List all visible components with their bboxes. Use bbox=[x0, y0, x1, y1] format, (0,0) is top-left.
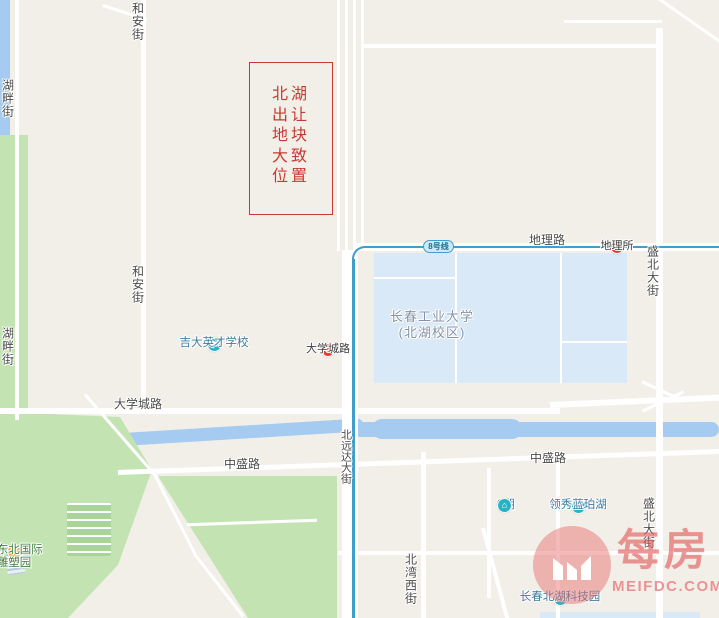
annotation-box: 北湖出让地块大致位置 bbox=[249, 62, 333, 215]
road-label-heanjie-top-text: 和安街 bbox=[131, 2, 144, 41]
watermark-domain-text: MEIFDC.COM bbox=[612, 578, 719, 595]
road-label-zhongsheng-west-text: 中盛路 bbox=[224, 458, 260, 471]
road-label-dililu-text: 地理路 bbox=[529, 234, 565, 247]
poi-jida-yingcai-school-text: 吉大英才学校 bbox=[180, 337, 249, 350]
station-daxuechenglu-text: 大学城路 bbox=[306, 343, 350, 356]
road-label-shengbei-top-text: 盛北大街 bbox=[646, 245, 659, 297]
annotation-line-5: 位置 bbox=[250, 166, 332, 187]
road-label-hupanjie-bottom-text: 湖畔街 bbox=[1, 327, 14, 366]
road-label-zhongsheng-east-text: 中盛路 bbox=[530, 452, 566, 465]
road-label-heanjie-mid-text: 和安街 bbox=[131, 265, 144, 304]
station-dilisuo-text: 地理所 bbox=[601, 240, 634, 253]
annotation-line-3: 地块 bbox=[250, 125, 332, 146]
campus-label-ccut-text: 长春工业大学(北湖校区) bbox=[390, 309, 474, 341]
residence-icon[interactable]: ⌂ bbox=[497, 498, 512, 513]
road-label-beiwanxi-text: 北湾西街 bbox=[404, 553, 417, 605]
poi-lingxiu-lanpohu-text: 领秀蓝珀湖 bbox=[549, 499, 607, 512]
annotation-line-2: 出让 bbox=[250, 105, 332, 126]
road-label-hupanjie-top-text: 湖畔街 bbox=[1, 79, 14, 118]
road-label-beiyuanda-text: 北远达大街 bbox=[339, 429, 352, 484]
map-canvas[interactable]: 8号线 和安街湖畔街和安街湖畔街地理路盛北大街大学城路北远达大街中盛路中盛路北湾… bbox=[0, 0, 719, 618]
watermark-brand-text: 每房 bbox=[617, 528, 711, 574]
road-label-daxuecheng-text: 大学城路 bbox=[114, 398, 162, 411]
poi-sculpture-park-text: 长东北国际雕塑园 bbox=[0, 544, 43, 570]
watermark-logo-icon bbox=[533, 526, 611, 604]
watermark: 每房 MEIFDC.COM bbox=[525, 524, 719, 604]
annotation-line-4: 大致 bbox=[250, 146, 332, 167]
annotation-line-1: 北湖 bbox=[250, 84, 332, 105]
